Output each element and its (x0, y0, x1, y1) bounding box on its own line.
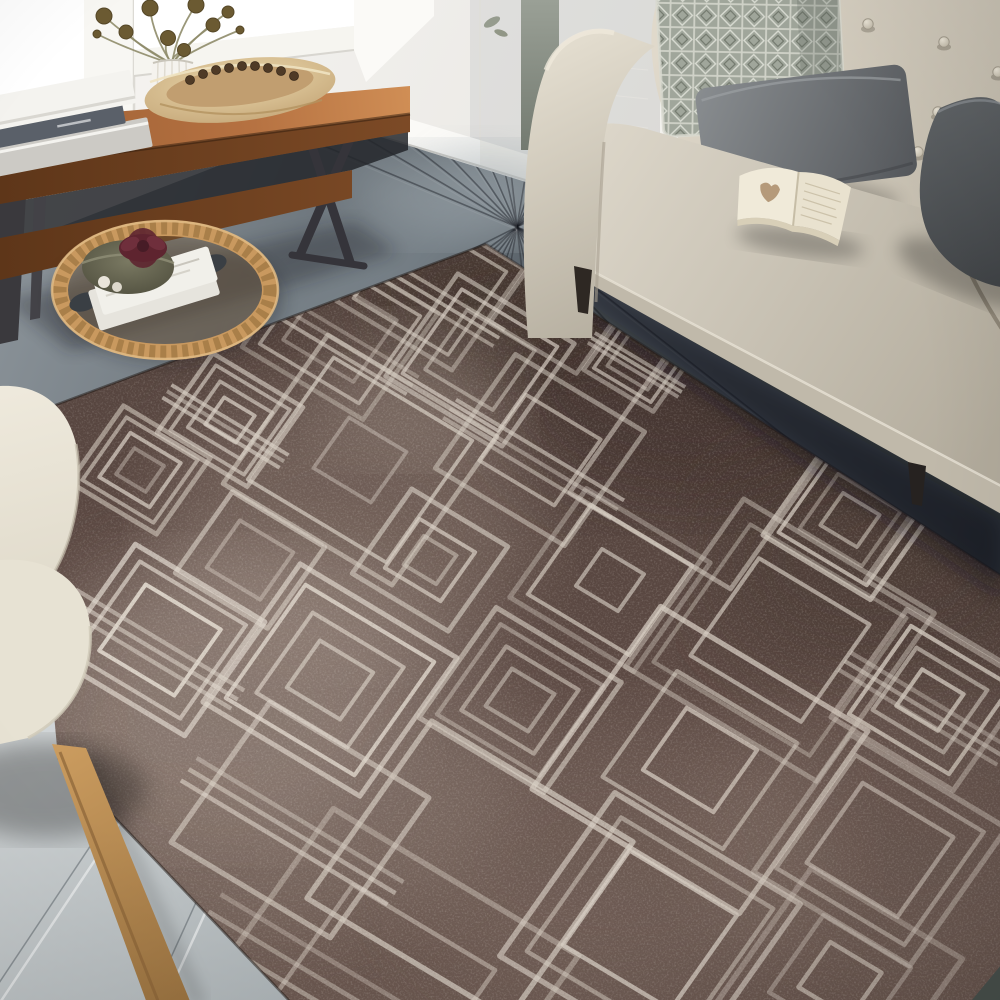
scene-canvas (0, 0, 1000, 1000)
living-room-photo (0, 0, 1000, 1000)
vignette (0, 0, 1000, 1000)
